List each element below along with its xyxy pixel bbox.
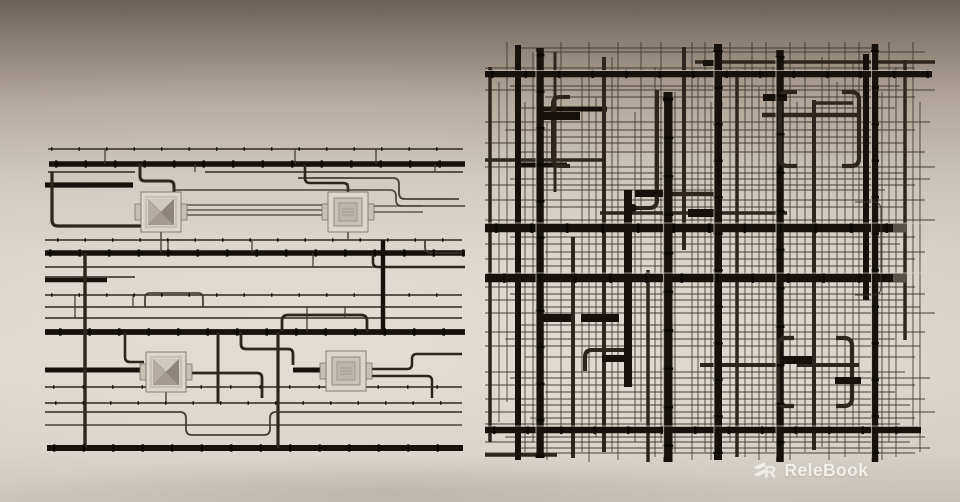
- air-diffuser-pyramid-1: [135, 192, 187, 232]
- air-diffuser-flat-2: [320, 351, 372, 391]
- air-diffusers: [135, 192, 374, 392]
- watermark: R ReleBook .com: [752, 458, 907, 482]
- air-diffuser-pyramid-2: [140, 352, 192, 392]
- render-stage: R ReleBook .com: [0, 0, 960, 502]
- logo-letter: R: [764, 463, 776, 482]
- horizontal-pipe-runs: [45, 149, 465, 448]
- pipe-system-elevation-view: [45, 142, 465, 458]
- pipe-elbows-and-jogs: [45, 164, 465, 448]
- parallel-branch-lines: [187, 205, 423, 215]
- air-diffuser-flat-1: [322, 192, 374, 232]
- pipe-system-grid-view: [485, 42, 935, 462]
- watermark-brand-text: ReleBook: [784, 460, 868, 481]
- relebook-r-icon: R: [752, 458, 778, 482]
- watermark-suffix-text: .com: [872, 461, 907, 479]
